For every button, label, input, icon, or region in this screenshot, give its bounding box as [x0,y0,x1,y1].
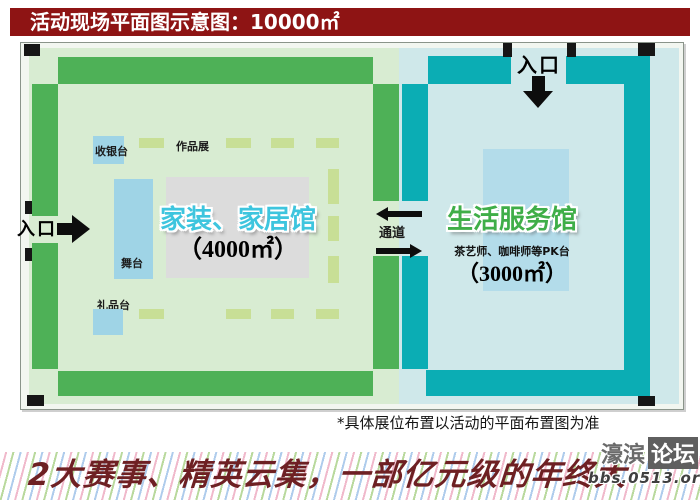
left-hall-area-label: （4000㎡） [113,237,363,263]
watermark-name-right: 论坛 [648,437,698,469]
right-hall-wall-left-upper [402,84,428,201]
booth-dash [139,309,164,319]
top-entrance-arrow-icon [523,76,553,108]
booth-dash [316,309,339,319]
slogan-text: 2大赛事、精英云集，一部亿元级的年终大 [26,452,628,500]
left-hall-wall-right-upper [373,84,399,201]
pk-stage-label: 茶艺师、咖啡师等PK台 [407,243,617,259]
booth-dash [271,138,294,148]
booth-dash [226,309,251,319]
left-hall-wall-bottom [58,371,373,396]
corner-mark-top-right [638,43,655,56]
left-hall-wall-left-upper [32,84,58,216]
door-post-left-upper [25,201,32,214]
right-hall-area-label: （3000㎡） [407,261,617,287]
watermark-url: bbs.0513.org [588,469,698,487]
left-entrance-label: 入口 [17,215,57,241]
right-hall-wall-top-right [566,56,624,84]
gift-counter-box [93,309,123,335]
disclaimer-note: *具体展位布置以活动的平面布置图为准 [337,412,600,433]
left-hall-name: 家装、家居馆 [113,205,363,235]
booth-dash [316,138,339,148]
works-expo-label: 作品展 [176,138,209,154]
left-hall-title-block: 家装、家居馆 （4000㎡） [113,205,363,263]
corridor-label: 通道 [379,222,405,241]
corner-mark-bottom-right [638,396,655,406]
booth-dash [328,169,339,204]
left-hall-wall-right-lower [373,256,399,369]
top-entrance-label: 入口 [517,49,561,78]
watermark-logo: 濠滨 论坛 [588,437,698,469]
left-hall-wall-left-lower [32,243,58,369]
right-hall-title-block: 生活服务馆 茶艺师、咖啡师等PK台 （3000㎡） [407,205,617,287]
corner-mark-bottom-left [27,395,44,406]
right-hall-wall-top-left [428,56,511,84]
booth-dash [271,309,294,319]
corner-mark-top-left [24,44,40,56]
forum-watermark: 濠滨 论坛 bbs.0513.org [588,437,698,487]
right-hall-wall-right [624,56,650,396]
booth-dash [139,138,164,148]
right-hall-name: 生活服务馆 [407,205,617,235]
booth-dash [226,138,251,148]
floor-plan: 收银台 作品展 舞台 家装、家居馆 （4000㎡） 礼品台 入口 通道 入口 生… [20,42,684,410]
cashier-label: 收银台 [95,143,128,159]
door-post-top-right [567,43,576,57]
left-entrance-arrow-icon [57,215,90,243]
door-post-left-lower [25,248,32,261]
title-banner: 活动现场平面图示意图：10000㎡ [10,8,690,36]
watermark-name-left: 濠滨 [601,437,645,469]
door-post-top-left [503,43,512,57]
page-title: 活动现场平面图示意图：10000㎡ [10,10,340,34]
left-hall-wall-top [58,57,373,84]
right-hall-wall-bottom [426,370,624,396]
